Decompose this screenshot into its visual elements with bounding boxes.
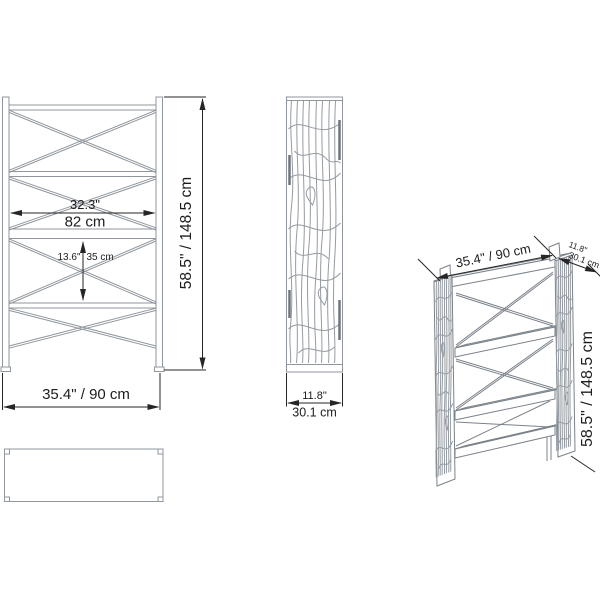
shelf: [9, 303, 156, 308]
perspective-view: 35.4" / 90 cm 11.8" 30.1 cm 58.5" / 148.…: [418, 236, 600, 486]
inner-width-cm-label: 82 cm: [65, 214, 106, 231]
dimension-diagram: 32.3" 82 cm 13.6" 35 cm 58.5" / 148.5 cm…: [0, 0, 600, 600]
depth-inches-label: 11.8": [302, 390, 327, 402]
width-tick-left: [418, 259, 440, 281]
shelf: [9, 172, 156, 177]
height-label: 58.5" / 148.5 cm: [579, 331, 596, 447]
shelf-gap-cm-label: 35 cm: [87, 252, 114, 263]
height-label: 58.5" / 148.5 cm: [178, 177, 195, 289]
product-dimension-image: 32.3" 82 cm 13.6" 35 cm 58.5" / 148.5 cm…: [0, 0, 600, 600]
shelf: [9, 105, 156, 110]
front-structure: [1, 97, 164, 372]
width-label: 35.4" / 90 cm: [42, 386, 130, 403]
corner-notch: [158, 449, 163, 454]
shelf-front: [455, 390, 555, 420]
front-dimensions: 32.3" 82 cm 13.6" 35 cm 58.5" / 148.5 cm…: [3, 97, 207, 410]
shelf-panel-outline: [5, 449, 164, 502]
corner-notch: [5, 449, 10, 454]
left-post: [3, 97, 10, 367]
side-view: 11.8" 30.1 cm: [287, 97, 343, 420]
corner-notch: [158, 497, 163, 502]
cross-brace-bay-1: [9, 110, 156, 172]
front-view: 32.3" 82 cm 13.6" 35 cm 58.5" / 148.5 cm…: [1, 97, 206, 410]
left-foot: [1, 367, 11, 372]
inner-width-inches-label: 32.3": [70, 197, 100, 212]
cross-brace-bay-4: [9, 308, 156, 348]
shelf-front: [455, 327, 555, 357]
shelf-front: [455, 426, 555, 458]
side-dimensions: 11.8" 30.1 cm: [287, 373, 343, 420]
top-view: [5, 449, 164, 502]
corner-notch: [5, 497, 10, 502]
right-foot: [155, 367, 165, 372]
depth-cm-label: 30.1 cm: [292, 406, 336, 420]
right-post: [156, 97, 163, 367]
side-decorative-pattern: [289, 101, 341, 363]
height-tick-bottom: [571, 456, 595, 472]
shelf-gap-inches-label: 13.6": [57, 252, 80, 263]
